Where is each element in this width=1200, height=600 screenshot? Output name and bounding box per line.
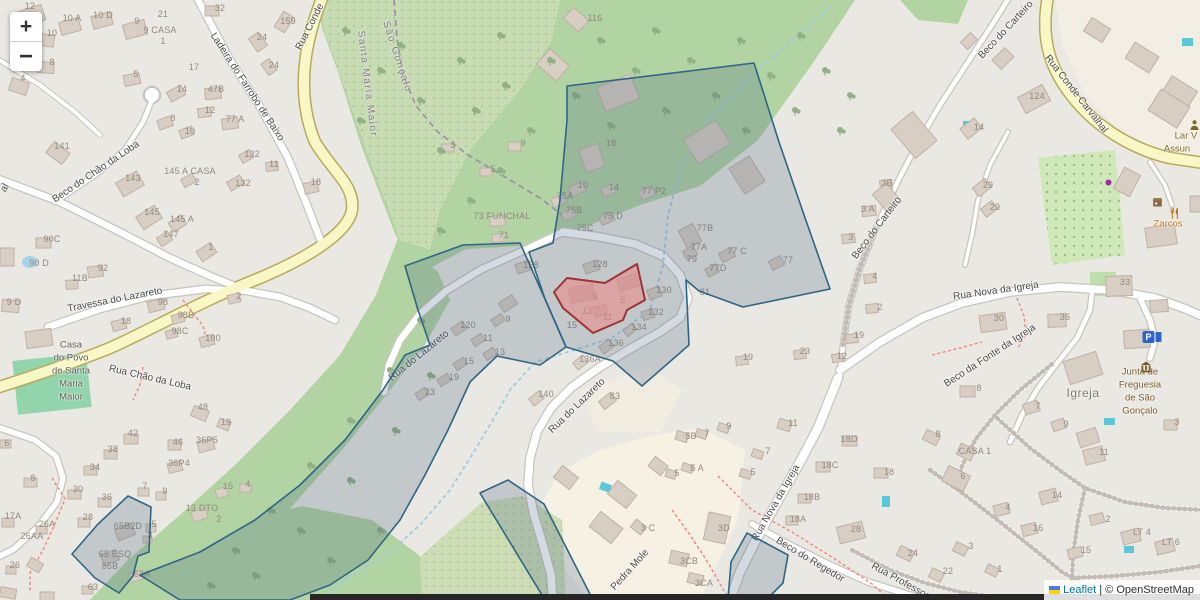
building <box>146 524 156 532</box>
building <box>573 355 589 370</box>
tree-icon <box>837 127 846 136</box>
building <box>678 223 702 248</box>
building <box>682 246 697 260</box>
building <box>794 349 807 359</box>
building <box>111 318 127 331</box>
building <box>896 545 914 561</box>
building <box>157 116 174 130</box>
building <box>196 242 217 261</box>
building <box>1039 488 1059 505</box>
building <box>786 516 798 525</box>
building <box>101 549 120 565</box>
building <box>0 587 17 600</box>
building <box>198 107 212 117</box>
tree-icon <box>822 67 831 76</box>
building <box>729 156 765 194</box>
building <box>248 32 267 52</box>
building <box>515 260 532 274</box>
attribution-bar: Leaflet | © OpenStreetMap <box>1044 580 1200 600</box>
building <box>156 231 172 246</box>
building <box>979 312 1007 332</box>
building <box>1089 512 1105 525</box>
building <box>167 460 183 473</box>
zoom-out-button[interactable]: − <box>10 42 42 71</box>
building <box>156 492 166 500</box>
building <box>985 564 1000 577</box>
building <box>717 422 730 433</box>
building <box>490 215 506 226</box>
building <box>1023 400 1041 415</box>
building <box>471 333 485 346</box>
building <box>842 436 857 446</box>
building <box>866 303 879 313</box>
building <box>2 518 14 527</box>
building <box>266 161 279 171</box>
building <box>104 450 117 459</box>
building <box>68 490 81 499</box>
building <box>980 201 997 217</box>
building <box>492 234 505 243</box>
landuse-area <box>580 368 682 432</box>
building <box>972 178 991 197</box>
building <box>1021 522 1038 536</box>
building <box>136 205 163 230</box>
building <box>862 205 877 216</box>
building <box>261 58 277 75</box>
building <box>239 150 254 164</box>
building <box>24 478 37 487</box>
building <box>993 502 1010 516</box>
building <box>199 334 215 347</box>
building <box>480 168 492 176</box>
building <box>641 308 655 320</box>
building <box>736 355 749 365</box>
map-canvas[interactable]: 1210 A10 D2199 CASA110178451481014132159… <box>0 0 1200 600</box>
building <box>1145 224 1177 248</box>
building <box>82 586 93 594</box>
building <box>768 256 784 271</box>
building <box>240 484 251 492</box>
building <box>453 357 467 370</box>
building <box>491 313 505 326</box>
building <box>751 448 764 459</box>
building <box>191 405 210 421</box>
building <box>143 536 152 543</box>
building <box>114 523 135 541</box>
building <box>124 434 138 444</box>
building <box>205 6 219 16</box>
zoom-control: + − <box>10 12 42 71</box>
building <box>1190 196 1200 212</box>
building <box>66 280 79 290</box>
building <box>6 566 16 574</box>
building <box>84 466 97 475</box>
building <box>498 295 517 313</box>
building <box>928 568 944 583</box>
building <box>1051 418 1066 432</box>
building <box>415 387 429 400</box>
building <box>798 494 811 503</box>
building <box>952 542 968 557</box>
building <box>1155 538 1176 555</box>
building <box>1164 420 1177 430</box>
building <box>1017 84 1050 113</box>
building <box>1063 351 1103 384</box>
building <box>138 488 149 496</box>
building <box>623 323 637 337</box>
building <box>1123 329 1150 349</box>
building <box>2 299 20 312</box>
building <box>451 321 468 336</box>
building <box>87 265 103 278</box>
building <box>593 305 608 317</box>
building <box>616 273 639 292</box>
building <box>122 19 147 39</box>
building <box>78 518 90 527</box>
building <box>437 373 451 386</box>
building <box>569 284 596 304</box>
building <box>166 85 185 102</box>
building <box>992 48 1014 70</box>
building <box>303 181 319 195</box>
building <box>960 386 975 397</box>
building <box>842 233 856 243</box>
pond <box>22 256 38 268</box>
building <box>1121 528 1142 545</box>
building <box>36 238 51 248</box>
leaflet-link[interactable]: Leaflet <box>1063 584 1096 596</box>
building <box>59 18 82 36</box>
map-tile-layer <box>0 0 1200 600</box>
building <box>705 264 720 278</box>
osm-attribution: © OpenStreetMap <box>1105 584 1194 596</box>
building <box>205 87 222 99</box>
building <box>874 468 888 478</box>
building <box>846 333 859 343</box>
building <box>25 328 53 348</box>
building <box>26 557 43 573</box>
building <box>1150 299 1169 312</box>
building <box>8 78 29 96</box>
building <box>718 247 735 262</box>
building <box>116 171 145 197</box>
tree-icon <box>347 477 356 486</box>
building <box>816 462 830 472</box>
forest-area <box>900 0 968 24</box>
building <box>0 248 14 266</box>
building <box>217 418 231 431</box>
building <box>91 12 114 30</box>
building <box>647 286 662 300</box>
building <box>864 273 877 283</box>
building <box>227 175 245 191</box>
building <box>197 438 215 453</box>
building <box>123 72 141 86</box>
building <box>168 215 187 232</box>
building <box>179 126 194 139</box>
tree-icon <box>392 427 401 436</box>
building <box>40 592 54 600</box>
attribution-separator: | <box>1099 584 1102 596</box>
leaflet-flag-icon <box>1049 586 1060 594</box>
tree-icon <box>792 107 801 116</box>
building <box>922 429 940 445</box>
building <box>0 440 11 448</box>
building <box>165 329 178 339</box>
building <box>1082 446 1105 465</box>
building <box>1076 427 1100 447</box>
building <box>777 418 792 432</box>
building <box>836 521 865 544</box>
building <box>1106 276 1133 297</box>
building <box>832 353 844 362</box>
building <box>181 173 197 187</box>
building <box>168 440 181 450</box>
building <box>583 260 600 274</box>
building <box>1067 546 1083 559</box>
building <box>36 526 47 534</box>
zoom-in-button[interactable]: + <box>10 12 42 42</box>
building <box>98 498 111 507</box>
building <box>941 466 970 492</box>
orchard-area-dots <box>1038 150 1125 265</box>
building <box>1048 314 1066 328</box>
tree-icon <box>847 92 856 101</box>
tree-icon <box>427 372 436 381</box>
building <box>508 142 521 151</box>
building <box>46 141 70 164</box>
building <box>483 347 497 360</box>
building <box>529 391 545 406</box>
building <box>274 11 294 33</box>
building <box>221 117 238 130</box>
